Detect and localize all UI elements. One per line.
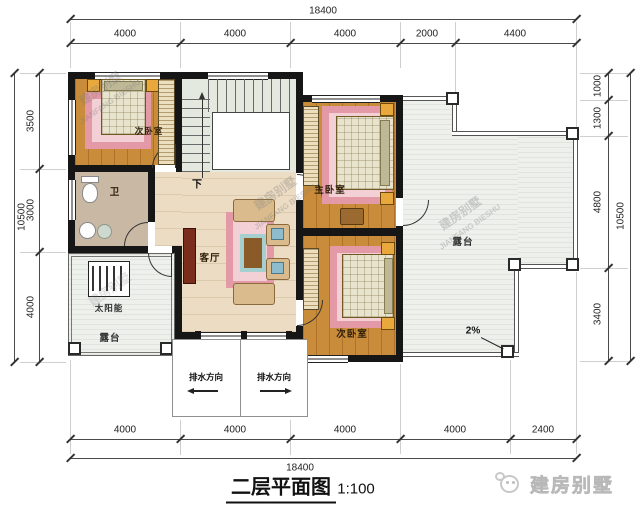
tv-cabinet: [183, 228, 196, 284]
page-title: 二层平面图: [226, 471, 336, 504]
coffee-table: [240, 234, 266, 272]
label-stairs-down: 下: [192, 176, 202, 191]
washbasin-icon: [79, 222, 96, 239]
dim-bot-5: 2400: [532, 425, 554, 436]
toilet-icon: [82, 183, 98, 203]
stair-direction-line: [202, 96, 203, 178]
plant-icon: [97, 224, 112, 239]
slope-label: 2%: [466, 326, 480, 337]
toilet-tank: [81, 176, 99, 183]
label-bedroom-bottom-right: 次卧室: [336, 326, 368, 340]
dim-right-3: 4800: [593, 191, 604, 213]
dim-top-2: 4000: [224, 29, 246, 40]
dim-bot-3: 4000: [334, 425, 356, 436]
sofa: [233, 283, 275, 305]
drainage-label-right: 排水方向: [257, 371, 291, 383]
stool: [340, 208, 364, 225]
label-terrace-bottom-left: 露台: [99, 330, 120, 344]
floor-terrace-right-c: [518, 133, 576, 268]
label-living-room: 客厅: [199, 250, 220, 264]
dim-top-1: 4000: [114, 29, 136, 40]
floor-plan-canvas: 18400 4000 4000 4000 2000 4400 4000 4000…: [0, 0, 640, 509]
arrow-left-icon: [187, 388, 194, 394]
label-master-bedroom: 主卧室: [314, 182, 346, 196]
title-scale: 1:100: [337, 481, 375, 498]
wardrobe: [158, 79, 175, 165]
dim-top-3: 4000: [334, 29, 356, 40]
dim-right-1: 1000: [593, 75, 604, 97]
drainage-label-left: 排水方向: [189, 371, 223, 383]
label-bathroom: 卫: [110, 184, 121, 198]
label-bedroom-top-left: 次卧室: [135, 125, 164, 137]
floor-hall: [155, 172, 182, 246]
logo-text: 建房别墅: [530, 471, 614, 498]
stair-arrow-icon: [199, 92, 205, 99]
dim-bot-4: 4000: [444, 425, 466, 436]
dim-bot-1: 4000: [114, 425, 136, 436]
wardrobe: [303, 248, 319, 310]
dim-bot-2: 4000: [224, 425, 246, 436]
dim-right-4: 3400: [593, 303, 604, 325]
dim-left-1: 3500: [26, 110, 37, 132]
dim-top-5: 4400: [504, 29, 526, 40]
stair-void: [212, 112, 290, 170]
dim-top-4: 2000: [416, 29, 438, 40]
dim-left-2: 3000: [26, 199, 37, 221]
mascot-face-icon: [495, 472, 521, 496]
dim-top-total: 18400: [309, 6, 337, 17]
dim-right-2: 1300: [593, 107, 604, 129]
arrow-right-icon: [285, 388, 292, 394]
dim-left-3: 4000: [26, 296, 37, 318]
dim-right-total: 10500: [616, 202, 627, 230]
